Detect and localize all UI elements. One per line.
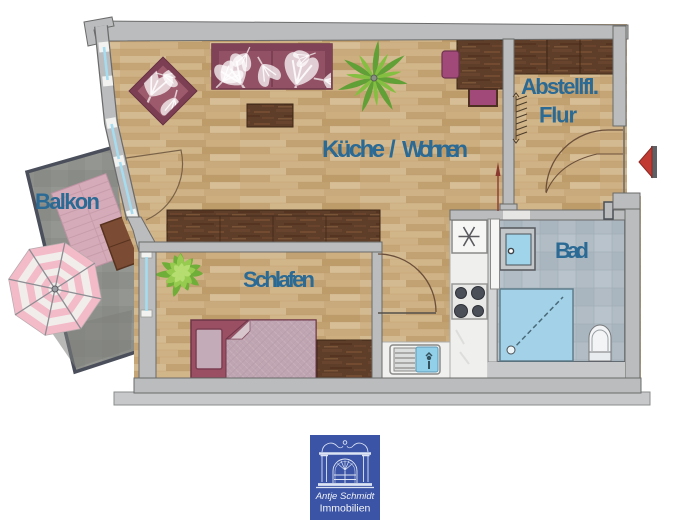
svg-text:Küche: Küche bbox=[322, 136, 385, 163]
svg-text:Immobilien: Immobilien bbox=[320, 503, 371, 515]
svg-text:Bad: Bad bbox=[555, 238, 589, 263]
svg-text:/: / bbox=[389, 136, 396, 163]
svg-text:Antje Schmidt: Antje Schmidt bbox=[315, 491, 375, 502]
svg-text:Wohnen: Wohnen bbox=[402, 136, 468, 162]
svg-text:Schlafen: Schlafen bbox=[243, 267, 315, 292]
svg-text:Flur: Flur bbox=[539, 103, 577, 128]
svg-text:Balkon: Balkon bbox=[35, 189, 100, 214]
svg-text:Abstellfl.: Abstellfl. bbox=[521, 74, 599, 99]
